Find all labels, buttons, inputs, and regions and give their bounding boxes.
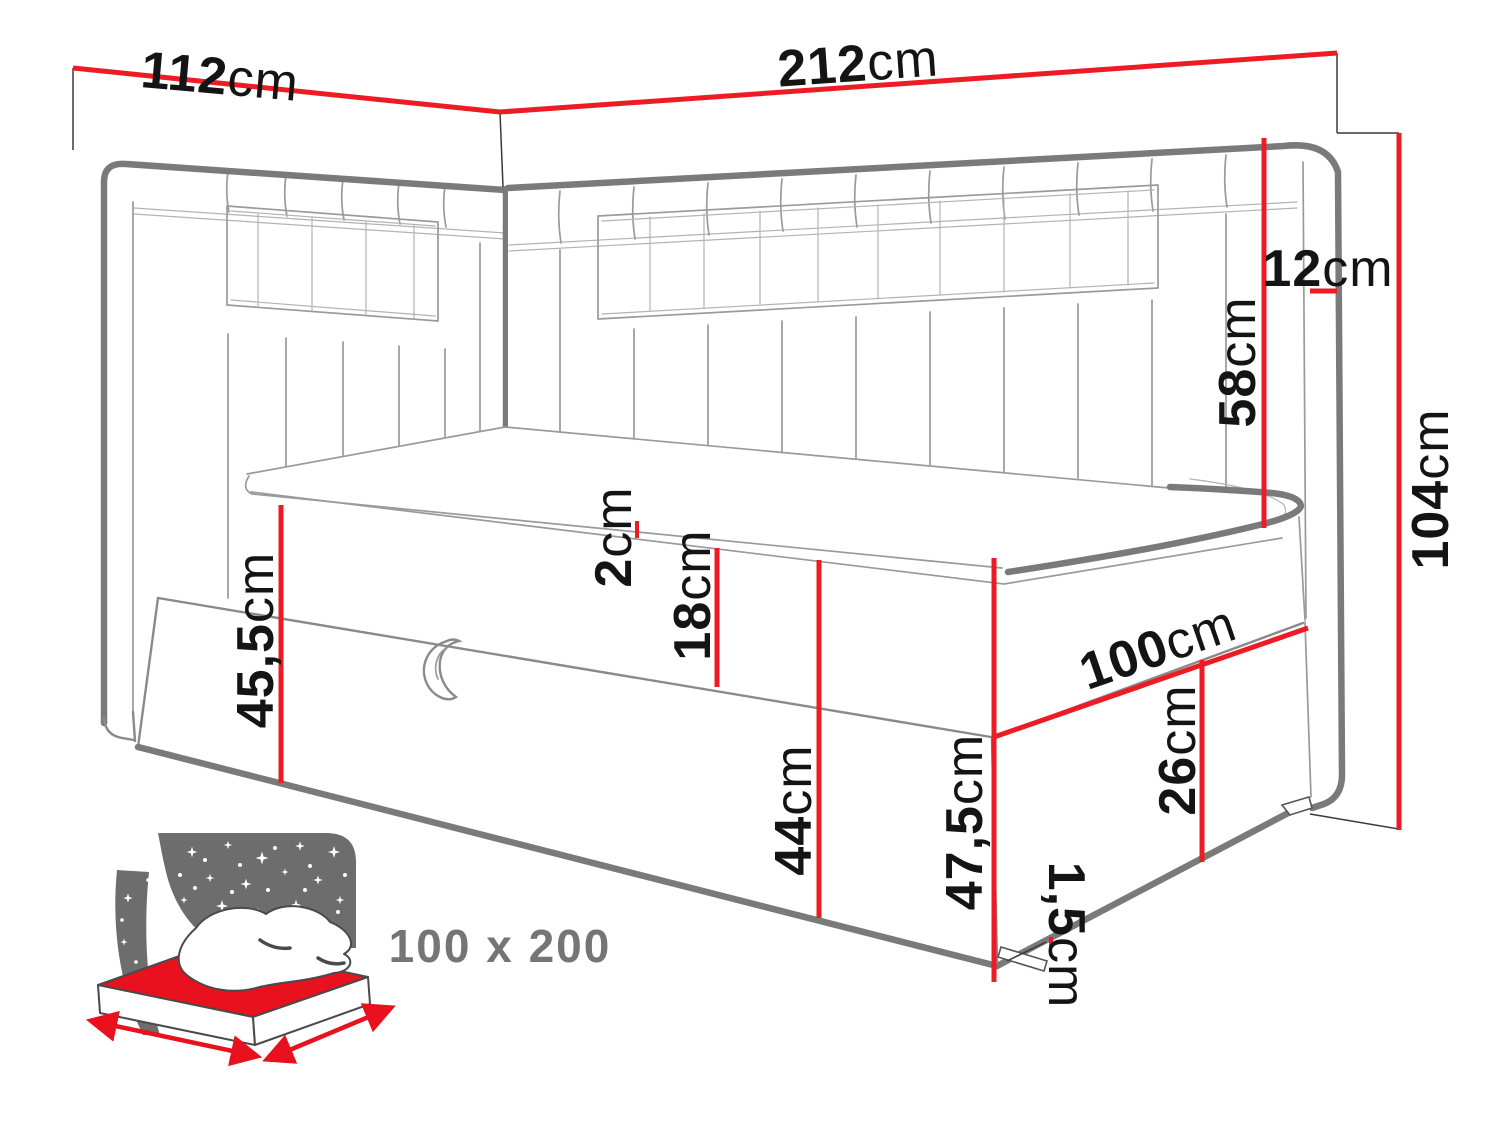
dimension-label-18cm: 18cm <box>664 529 722 660</box>
dimension-label-1-5cm: 1,5cm <box>1037 862 1095 1009</box>
dimension-label-2cm: 2cm <box>585 486 643 587</box>
icon-size-label: 100 x 200 <box>389 920 612 972</box>
dimension-label-58cm: 58cm <box>1209 296 1267 427</box>
bed-dimension-diagram: 100 x 200 112cm 212cm 12cm 58cm 104cm 2c… <box>0 0 1500 1125</box>
dimension-label-47-5cm: 47,5cm <box>936 734 994 911</box>
dimension-label-44cm: 44cm <box>765 744 823 875</box>
dimension-label-12cm: 12cm <box>1262 240 1393 298</box>
dimension-label-26cm: 26cm <box>1149 684 1207 815</box>
dimension-label-104cm: 104cm <box>1402 408 1460 569</box>
size-icon: 100 x 200 <box>92 833 611 1059</box>
dimension-label-112cm: 112cm <box>139 41 302 113</box>
dimension-label-212cm: 212cm <box>776 29 941 98</box>
dimension-label-45-5cm: 45,5cm <box>227 552 285 729</box>
